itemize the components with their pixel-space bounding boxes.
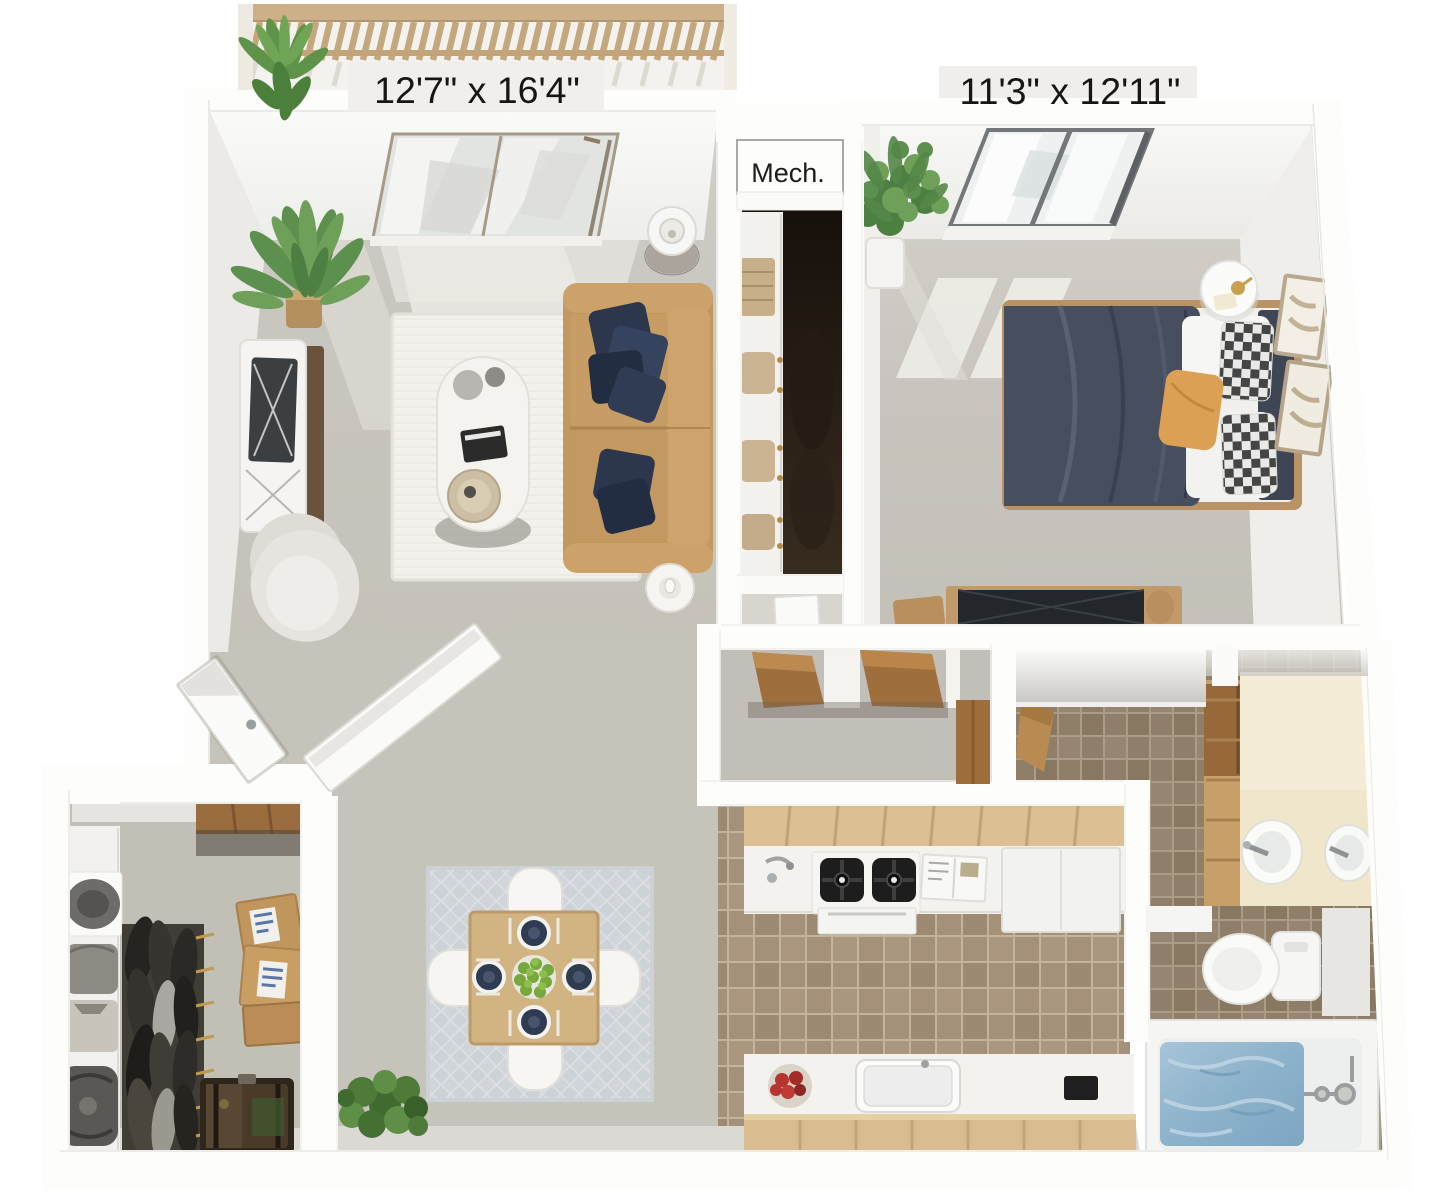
svg-text:11'3" x 12'11": 11'3" x 12'11" [960,70,1181,112]
svg-text:Mech.: Mech. [751,158,825,188]
svg-text:12'7" x 16'4": 12'7" x 16'4" [374,69,580,111]
